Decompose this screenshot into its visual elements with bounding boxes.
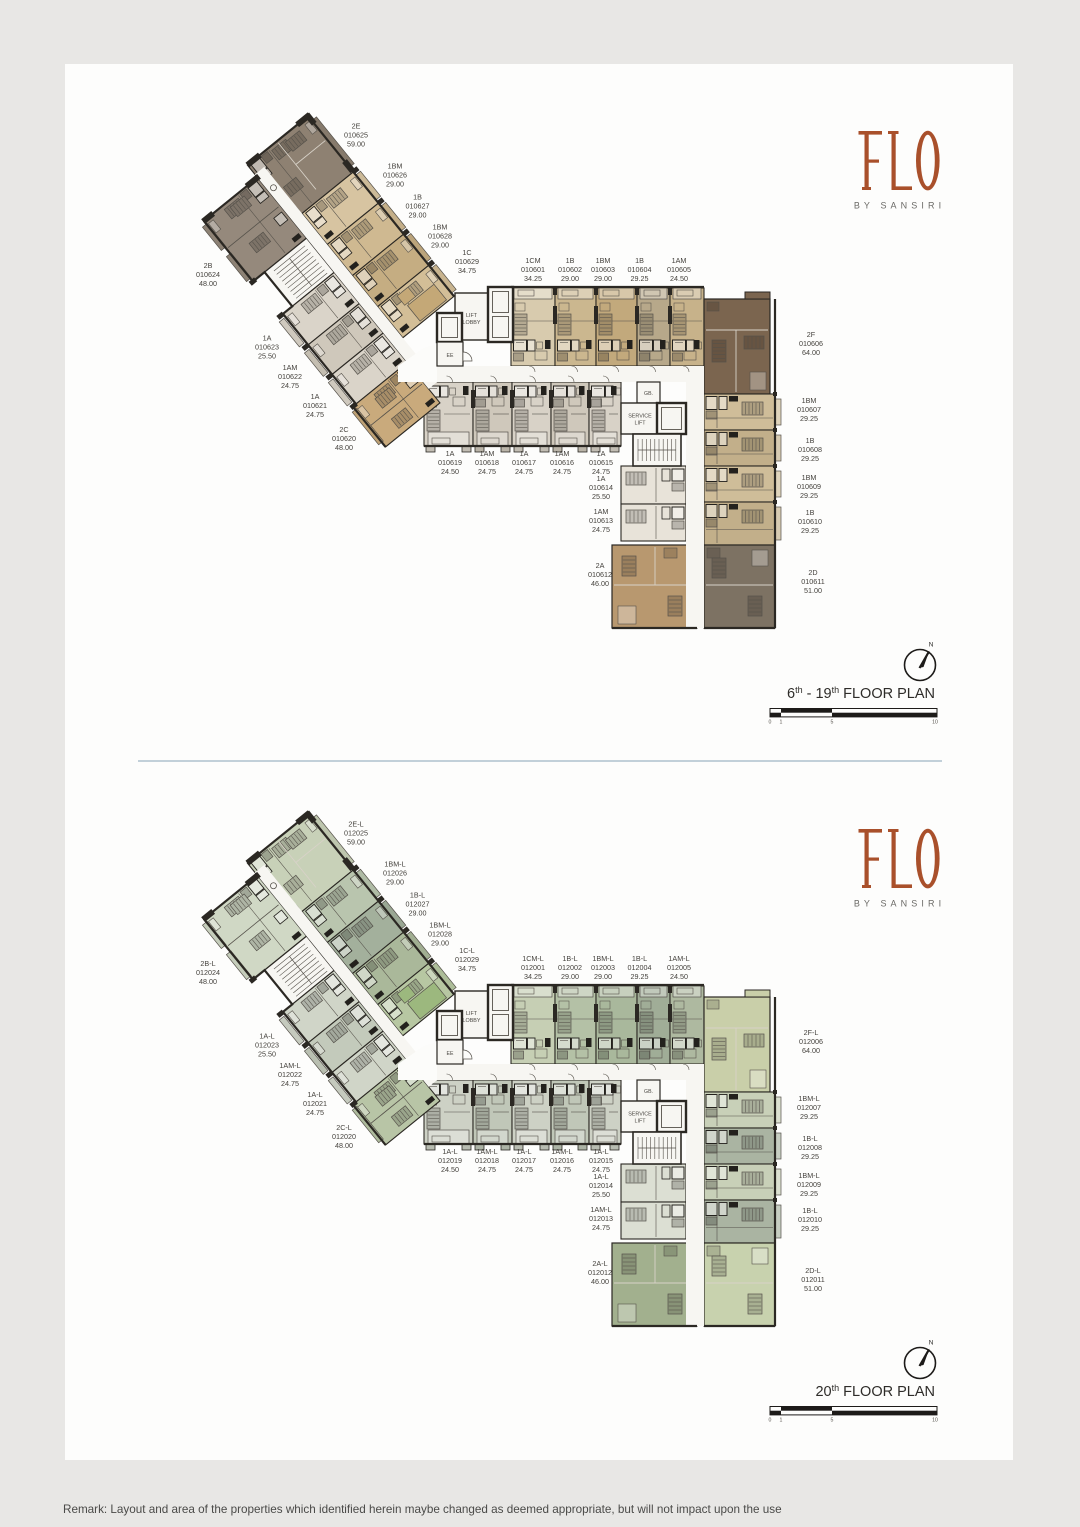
svg-text:010605: 010605 <box>667 265 691 274</box>
svg-text:010619: 010619 <box>438 458 462 467</box>
svg-text:24.75: 24.75 <box>592 1223 610 1232</box>
svg-text:1BM: 1BM <box>802 473 817 482</box>
svg-text:24.75: 24.75 <box>478 1165 496 1174</box>
svg-text:29.00: 29.00 <box>409 908 427 917</box>
svg-text:2A-L: 2A-L <box>592 1259 607 1268</box>
svg-text:1B-L: 1B-L <box>802 1206 817 1215</box>
svg-text:1B-L: 1B-L <box>562 954 577 963</box>
svg-text:010614: 010614 <box>589 483 613 492</box>
svg-text:012014: 012014 <box>589 1181 613 1190</box>
svg-text:1AM-L: 1AM-L <box>279 1061 300 1070</box>
svg-text:010602: 010602 <box>558 265 582 274</box>
svg-text:LIFT: LIFT <box>466 1011 478 1017</box>
svg-text:29.00: 29.00 <box>386 877 404 886</box>
svg-text:25.50: 25.50 <box>592 1190 610 1199</box>
svg-text:29.25: 29.25 <box>801 1152 819 1161</box>
svg-text:0: 0 <box>769 1418 772 1424</box>
svg-text:29.25: 29.25 <box>800 1189 818 1198</box>
svg-text:1A-L: 1A-L <box>593 1147 608 1156</box>
svg-text:012027: 012027 <box>406 899 430 908</box>
svg-text:0: 0 <box>769 720 772 726</box>
svg-text:GB.: GB. <box>644 391 653 397</box>
svg-text:24.75: 24.75 <box>306 1108 324 1117</box>
svg-text:24.75: 24.75 <box>553 1165 571 1174</box>
svg-text:29.00: 29.00 <box>431 938 449 947</box>
svg-text:24.75: 24.75 <box>478 467 496 476</box>
svg-text:BY SANSIRI: BY SANSIRI <box>854 201 945 211</box>
svg-text:10: 10 <box>932 720 938 726</box>
svg-text:1A-L: 1A-L <box>307 1090 322 1099</box>
svg-text:2B-L: 2B-L <box>200 959 215 968</box>
svg-text:1AM-L: 1AM-L <box>668 954 689 963</box>
svg-text:010624: 010624 <box>196 270 220 279</box>
svg-text:1B-L: 1B-L <box>802 1134 817 1143</box>
svg-text:1AM-L: 1AM-L <box>476 1147 497 1156</box>
svg-text:LOBBY: LOBBY <box>463 1018 481 1024</box>
svg-text:1A-L: 1A-L <box>442 1147 457 1156</box>
svg-text:2D: 2D <box>808 568 817 577</box>
svg-text:010615: 010615 <box>589 458 613 467</box>
svg-text:LIFT: LIFT <box>634 421 646 427</box>
svg-text:2B: 2B <box>204 261 213 270</box>
svg-text:29.00: 29.00 <box>594 274 612 283</box>
svg-text:GB.: GB. <box>644 1089 653 1095</box>
svg-text:1B: 1B <box>566 256 575 265</box>
svg-text:EE: EE <box>447 1051 454 1057</box>
svg-text:1BM: 1BM <box>388 161 403 170</box>
svg-text:2E-L: 2E-L <box>348 819 363 828</box>
svg-text:1AM: 1AM <box>594 507 609 516</box>
svg-text:012013: 012013 <box>589 1214 613 1223</box>
svg-text:1B: 1B <box>635 256 644 265</box>
svg-text:012011: 012011 <box>801 1275 824 1284</box>
svg-text:1A: 1A <box>597 474 606 483</box>
svg-text:012017: 012017 <box>512 1156 536 1165</box>
svg-text:2C-L: 2C-L <box>336 1123 352 1132</box>
svg-text:51.00: 51.00 <box>804 586 822 595</box>
svg-text:012025: 012025 <box>344 828 368 837</box>
svg-text:24.50: 24.50 <box>441 1165 459 1174</box>
svg-text:59.00: 59.00 <box>347 837 365 846</box>
svg-text:012021: 012021 <box>303 1099 327 1108</box>
svg-text:25.50: 25.50 <box>258 351 276 360</box>
svg-text:010626: 010626 <box>383 170 407 179</box>
svg-text:LOBBY: LOBBY <box>463 320 481 326</box>
svg-text:24.50: 24.50 <box>670 972 688 981</box>
svg-text:29.25: 29.25 <box>801 1224 819 1233</box>
svg-text:010623: 010623 <box>255 342 279 351</box>
svg-text:25.50: 25.50 <box>258 1049 276 1058</box>
svg-text:1C: 1C <box>462 248 471 257</box>
svg-text:010604: 010604 <box>628 265 652 274</box>
svg-text:012012: 012012 <box>588 1268 612 1277</box>
svg-text:24.75: 24.75 <box>515 1165 533 1174</box>
svg-text:24.75: 24.75 <box>306 410 324 419</box>
svg-text:46.00: 46.00 <box>591 1277 609 1286</box>
svg-text:1: 1 <box>780 720 783 726</box>
svg-text:34.75: 34.75 <box>458 964 476 973</box>
svg-text:012008: 012008 <box>798 1143 822 1152</box>
svg-text:34.75: 34.75 <box>458 266 476 275</box>
svg-text:29.25: 29.25 <box>801 454 819 463</box>
svg-text:48.00: 48.00 <box>335 443 353 452</box>
svg-text:1A: 1A <box>311 392 320 401</box>
svg-text:012005: 012005 <box>667 963 691 972</box>
svg-text:012001: 012001 <box>521 963 545 972</box>
svg-text:012022: 012022 <box>278 1070 302 1079</box>
svg-text:010607: 010607 <box>797 405 821 414</box>
svg-text:1AM-L: 1AM-L <box>590 1205 611 1214</box>
svg-text:1BM: 1BM <box>802 396 817 405</box>
svg-text:1AM: 1AM <box>672 256 687 265</box>
svg-text:29.25: 29.25 <box>631 972 649 981</box>
svg-text:012007: 012007 <box>797 1103 821 1112</box>
svg-text:1BM-L: 1BM-L <box>384 859 405 868</box>
svg-text:012016: 012016 <box>550 1156 574 1165</box>
svg-text:24.50: 24.50 <box>441 467 459 476</box>
svg-text:1B: 1B <box>806 436 815 445</box>
svg-text:BY SANSIRI: BY SANSIRI <box>854 899 945 909</box>
svg-text:010612: 010612 <box>588 570 612 579</box>
svg-text:29.25: 29.25 <box>800 491 818 500</box>
svg-text:51.00: 51.00 <box>804 1284 822 1293</box>
svg-text:29.00: 29.00 <box>561 274 579 283</box>
svg-text:29.00: 29.00 <box>561 972 579 981</box>
svg-text:48.00: 48.00 <box>199 279 217 288</box>
svg-text:012010: 012010 <box>798 1215 822 1224</box>
svg-text:64.00: 64.00 <box>802 348 820 357</box>
svg-text:010609: 010609 <box>797 482 821 491</box>
svg-text:64.00: 64.00 <box>802 1046 820 1055</box>
svg-text:48.00: 48.00 <box>199 977 217 986</box>
svg-text:1BM-L: 1BM-L <box>798 1171 819 1180</box>
svg-text:1A-L: 1A-L <box>593 1172 608 1181</box>
svg-text:24.50: 24.50 <box>670 274 688 283</box>
svg-text:1AM-L: 1AM-L <box>551 1147 572 1156</box>
svg-text:25.50: 25.50 <box>592 492 610 501</box>
svg-text:1CM: 1CM <box>525 256 540 265</box>
svg-text:012002: 012002 <box>558 963 582 972</box>
svg-text:29.00: 29.00 <box>594 972 612 981</box>
svg-text:012023: 012023 <box>255 1040 279 1049</box>
svg-text:24.75: 24.75 <box>592 525 610 534</box>
svg-text:1: 1 <box>780 1418 783 1424</box>
svg-text:1BM-L: 1BM-L <box>429 920 450 929</box>
svg-text:LIFT: LIFT <box>466 313 478 319</box>
svg-text:1BM-L: 1BM-L <box>798 1094 819 1103</box>
svg-text:34.25: 34.25 <box>524 274 542 283</box>
svg-text:010601: 010601 <box>521 265 545 274</box>
svg-text:012003: 012003 <box>591 963 615 972</box>
svg-text:012026: 012026 <box>383 868 407 877</box>
svg-text:10: 10 <box>932 1418 938 1424</box>
svg-text:010608: 010608 <box>798 445 822 454</box>
svg-text:1AM: 1AM <box>555 449 570 458</box>
svg-text:010611: 010611 <box>801 577 824 586</box>
svg-text:46.00: 46.00 <box>591 579 609 588</box>
svg-text:012028: 012028 <box>428 929 452 938</box>
svg-text:34.25: 34.25 <box>524 972 542 981</box>
svg-text:010627: 010627 <box>406 201 430 210</box>
svg-text:010621: 010621 <box>303 401 327 410</box>
svg-text:Remark: Layout and area of the: Remark: Layout and area of the propertie… <box>63 1503 782 1516</box>
svg-text:2E: 2E <box>352 121 361 130</box>
svg-text:010628: 010628 <box>428 231 452 240</box>
svg-text:012006: 012006 <box>799 1037 823 1046</box>
svg-text:012020: 012020 <box>332 1132 356 1141</box>
svg-text:48.00: 48.00 <box>335 1141 353 1150</box>
svg-text:LIFT: LIFT <box>634 1119 646 1125</box>
svg-text:1A-L: 1A-L <box>516 1147 531 1156</box>
svg-text:29.25: 29.25 <box>631 274 649 283</box>
svg-text:2D-L: 2D-L <box>805 1266 821 1275</box>
svg-text:EE: EE <box>447 353 454 359</box>
svg-text:1BM: 1BM <box>596 256 611 265</box>
svg-text:012015: 012015 <box>589 1156 613 1165</box>
svg-text:1B-L: 1B-L <box>410 890 425 899</box>
svg-text:1B-L: 1B-L <box>632 954 647 963</box>
svg-text:24.75: 24.75 <box>281 1079 299 1088</box>
svg-text:012009: 012009 <box>797 1180 821 1189</box>
svg-text:1A: 1A <box>446 449 455 458</box>
svg-text:1A: 1A <box>263 333 272 342</box>
svg-text:2C: 2C <box>339 425 348 434</box>
svg-text:1BM-L: 1BM-L <box>592 954 613 963</box>
svg-text:1BM: 1BM <box>433 222 448 231</box>
svg-text:2F-L: 2F-L <box>804 1028 819 1037</box>
svg-text:N: N <box>929 1340 934 1347</box>
svg-text:010606: 010606 <box>799 339 823 348</box>
svg-text:010603: 010603 <box>591 265 615 274</box>
svg-text:29.25: 29.25 <box>800 414 818 423</box>
svg-text:1C-L: 1C-L <box>459 946 475 955</box>
svg-text:010625: 010625 <box>344 130 368 139</box>
svg-text:1CM-L: 1CM-L <box>522 954 544 963</box>
svg-text:59.00: 59.00 <box>347 139 365 148</box>
svg-text:N: N <box>929 642 934 649</box>
svg-text:012029: 012029 <box>455 955 479 964</box>
svg-text:6th - 19th FLOOR PLAN: 6th - 19th FLOOR PLAN <box>787 685 935 702</box>
svg-text:010610: 010610 <box>798 517 822 526</box>
svg-text:1B: 1B <box>413 192 422 201</box>
svg-text:010618: 010618 <box>475 458 499 467</box>
svg-text:29.00: 29.00 <box>409 210 427 219</box>
svg-text:1A: 1A <box>520 449 529 458</box>
svg-text:010622: 010622 <box>278 372 302 381</box>
svg-text:1B: 1B <box>806 508 815 517</box>
svg-text:29.25: 29.25 <box>800 1112 818 1121</box>
svg-text:1AM: 1AM <box>283 363 298 372</box>
svg-text:012018: 012018 <box>475 1156 499 1165</box>
svg-text:1A-L: 1A-L <box>259 1031 274 1040</box>
svg-text:29.00: 29.00 <box>386 179 404 188</box>
svg-text:24.75: 24.75 <box>281 381 299 390</box>
svg-text:5: 5 <box>831 1418 834 1424</box>
svg-text:24.75: 24.75 <box>553 467 571 476</box>
svg-text:SERVICE: SERVICE <box>628 1112 652 1118</box>
svg-text:29.00: 29.00 <box>431 240 449 249</box>
svg-text:010620: 010620 <box>332 434 356 443</box>
svg-text:010629: 010629 <box>455 257 479 266</box>
svg-text:010613: 010613 <box>589 516 613 525</box>
svg-text:010616: 010616 <box>550 458 574 467</box>
svg-text:012024: 012024 <box>196 968 220 977</box>
svg-text:29.25: 29.25 <box>801 526 819 535</box>
svg-text:010617: 010617 <box>512 458 536 467</box>
svg-text:24.75: 24.75 <box>515 467 533 476</box>
svg-text:1AM: 1AM <box>480 449 495 458</box>
svg-text:1A: 1A <box>597 449 606 458</box>
svg-text:5: 5 <box>831 720 834 726</box>
svg-text:SERVICE: SERVICE <box>628 414 652 420</box>
svg-text:012019: 012019 <box>438 1156 462 1165</box>
svg-text:2A: 2A <box>596 561 605 570</box>
svg-text:2F: 2F <box>807 330 816 339</box>
svg-text:012004: 012004 <box>628 963 652 972</box>
